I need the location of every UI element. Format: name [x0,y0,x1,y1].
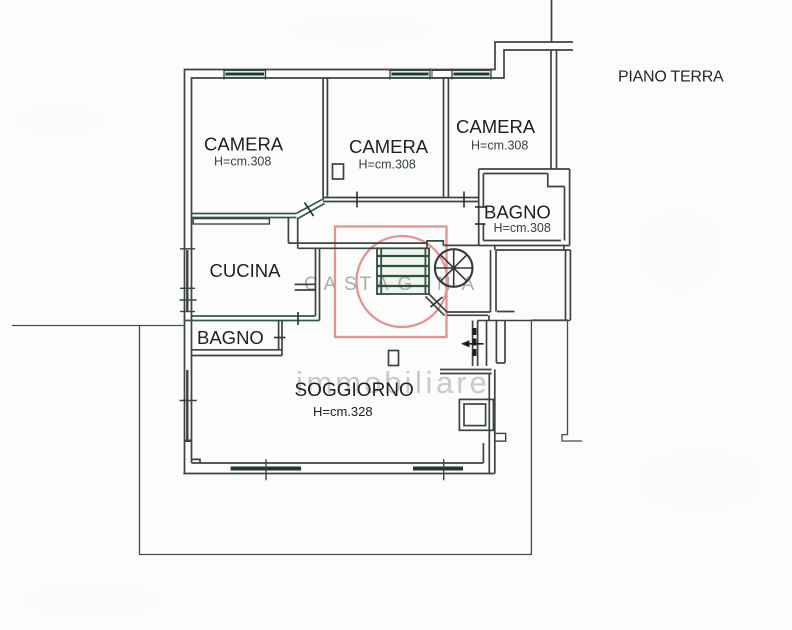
svg-text:H=cm.308: H=cm.308 [214,155,271,169]
svg-text:PIANO TERRA: PIANO TERRA [618,69,724,86]
svg-text:SOGGIORNO: SOGGIORNO [295,380,414,401]
svg-text:BAGNO: BAGNO [197,327,264,348]
svg-text:H=cm.328: H=cm.328 [313,404,373,419]
svg-text:BAGNO: BAGNO [484,202,551,223]
svg-text:CUCINA: CUCINA [210,260,282,281]
svg-text:H=cm.308: H=cm.308 [359,158,416,172]
svg-text:CAMERA: CAMERA [349,136,429,157]
svg-text:H=cm.308: H=cm.308 [471,139,528,153]
svg-text:CAMERA: CAMERA [456,116,536,137]
svg-text:CAMERA: CAMERA [204,134,284,155]
svg-text:H=cm.308: H=cm.308 [494,221,551,235]
